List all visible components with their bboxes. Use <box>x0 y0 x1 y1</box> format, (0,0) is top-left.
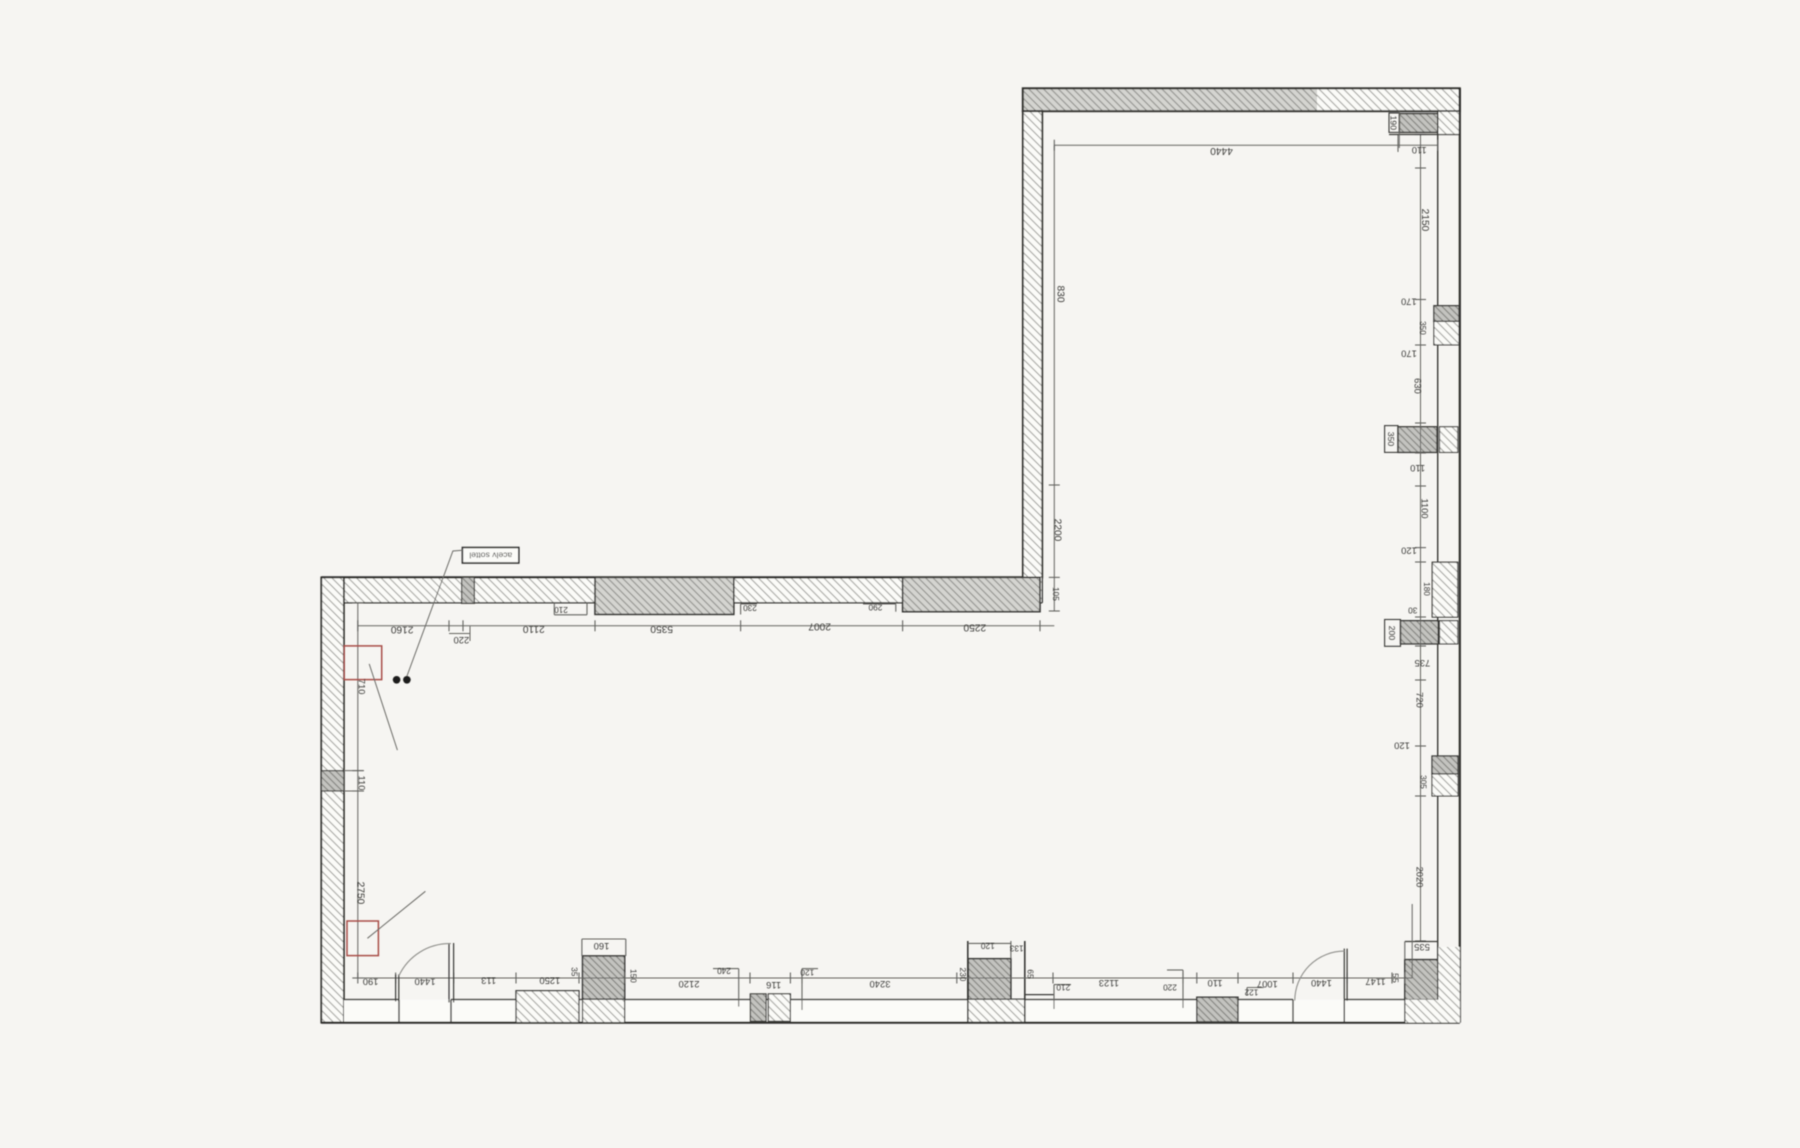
svg-text:4440: 4440 <box>1210 145 1233 156</box>
svg-text:1440: 1440 <box>415 977 436 988</box>
svg-text:2160: 2160 <box>390 624 413 635</box>
svg-text:55: 55 <box>1391 973 1401 983</box>
svg-text:2120: 2120 <box>679 979 700 990</box>
svg-text:170: 170 <box>1401 296 1417 307</box>
svg-text:116: 116 <box>766 980 781 991</box>
svg-text:1250: 1250 <box>539 976 560 987</box>
svg-text:35: 35 <box>570 967 580 977</box>
svg-text:113: 113 <box>481 976 496 987</box>
svg-text:120: 120 <box>1394 741 1410 752</box>
svg-text:290: 290 <box>868 603 882 613</box>
svg-text:190: 190 <box>363 977 379 988</box>
svg-text:110: 110 <box>1208 978 1223 989</box>
svg-text:170: 170 <box>1401 349 1417 360</box>
svg-text:3240: 3240 <box>870 979 891 990</box>
svg-text:150: 150 <box>629 969 639 983</box>
svg-text:180: 180 <box>1422 582 1432 596</box>
svg-text:350: 350 <box>1418 321 1428 335</box>
svg-text:210: 210 <box>554 605 568 615</box>
svg-text:160: 160 <box>594 941 610 952</box>
svg-text:735: 735 <box>1415 658 1431 669</box>
svg-text:2007: 2007 <box>808 620 831 631</box>
svg-text:190: 190 <box>1389 116 1399 131</box>
svg-text:2150: 2150 <box>1419 209 1430 232</box>
svg-text:350: 350 <box>1386 432 1396 447</box>
svg-text:1123: 1123 <box>1099 978 1119 989</box>
svg-text:120: 120 <box>980 941 994 951</box>
svg-text:acelv sottel: acelv sottel <box>469 551 512 561</box>
svg-text:1007: 1007 <box>1257 979 1278 990</box>
svg-text:230: 230 <box>958 967 968 981</box>
svg-text:1147: 1147 <box>1365 977 1385 988</box>
svg-text:5350: 5350 <box>650 623 673 634</box>
svg-text:200: 200 <box>1387 626 1397 641</box>
svg-text:120: 120 <box>800 967 814 977</box>
svg-text:710: 710 <box>357 679 368 695</box>
svg-text:1100: 1100 <box>1419 498 1430 518</box>
svg-text:110: 110 <box>357 776 368 791</box>
svg-text:230: 230 <box>743 603 757 613</box>
svg-text:133: 133 <box>1009 943 1023 953</box>
svg-text:220: 220 <box>454 635 470 646</box>
svg-text:2110: 2110 <box>523 623 545 634</box>
svg-text:30: 30 <box>1408 606 1418 616</box>
svg-text:240: 240 <box>717 966 731 976</box>
svg-text:2020: 2020 <box>1415 867 1426 888</box>
svg-text:220: 220 <box>1163 982 1177 992</box>
svg-text:1440: 1440 <box>1311 978 1332 989</box>
svg-text:2250: 2250 <box>963 622 986 633</box>
svg-text:830: 830 <box>1055 286 1066 303</box>
svg-text:110: 110 <box>1412 145 1427 156</box>
svg-text:720: 720 <box>1415 692 1426 708</box>
svg-text:110: 110 <box>1410 463 1425 474</box>
svg-text:105: 105 <box>1051 587 1061 601</box>
svg-text:120: 120 <box>1401 546 1417 557</box>
svg-text:2200: 2200 <box>1052 519 1063 542</box>
svg-text:2750: 2750 <box>355 882 366 905</box>
svg-text:305: 305 <box>1419 775 1429 789</box>
svg-text:535: 535 <box>1414 942 1430 953</box>
svg-text:65: 65 <box>1026 969 1036 979</box>
svg-text:630: 630 <box>1413 378 1424 394</box>
svg-text:210: 210 <box>1056 982 1070 992</box>
svg-text:122: 122 <box>1244 988 1258 998</box>
